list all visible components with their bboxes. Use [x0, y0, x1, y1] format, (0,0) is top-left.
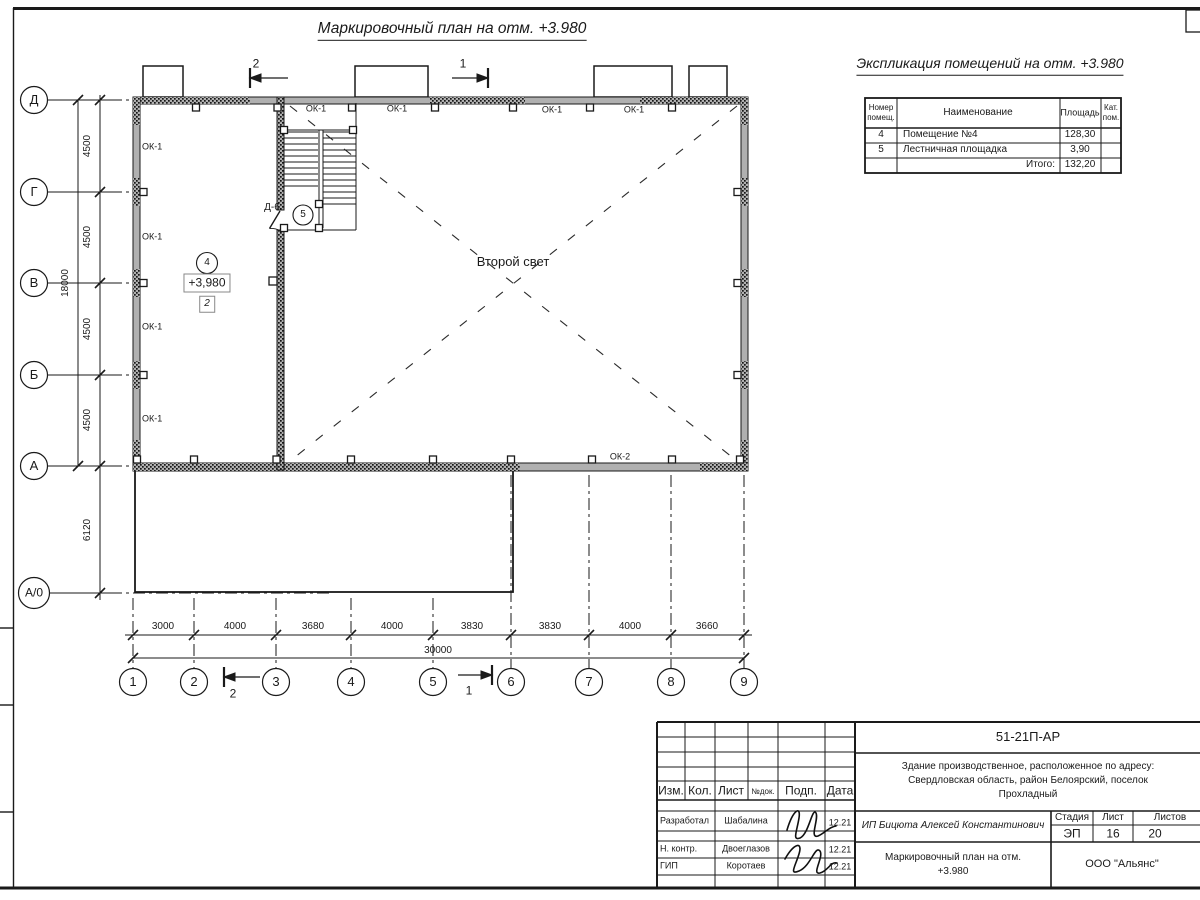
drawing-sheet: Маркировочный план на отм. +3.980 Экспли… — [0, 0, 1200, 900]
section-marks — [224, 68, 492, 687]
corner-stamp-box — [1186, 10, 1200, 32]
stair-treads-left — [284, 132, 318, 186]
floor-plan — [19, 66, 758, 696]
exterior-walls — [133, 97, 748, 471]
pilaster-bumpouts — [143, 66, 727, 97]
column-markers — [134, 104, 744, 463]
explication-table-grid — [865, 98, 1121, 173]
door-leaf — [270, 211, 281, 229]
signature-1 — [787, 811, 836, 839]
signature-2 — [785, 845, 837, 873]
interior-wall — [277, 97, 284, 470]
void-cross-lines — [290, 106, 737, 461]
stair-treads-right — [323, 132, 356, 204]
lower-building-outline — [135, 470, 513, 592]
room-4-bubble — [197, 253, 218, 274]
signatures — [785, 811, 837, 873]
door-swing-arc — [270, 228, 281, 230]
sheet-frame — [0, 8, 1200, 889]
room-5-bubble — [293, 205, 313, 225]
drawing-geometry — [0, 0, 1200, 900]
titleblock-grid — [657, 722, 1200, 888]
